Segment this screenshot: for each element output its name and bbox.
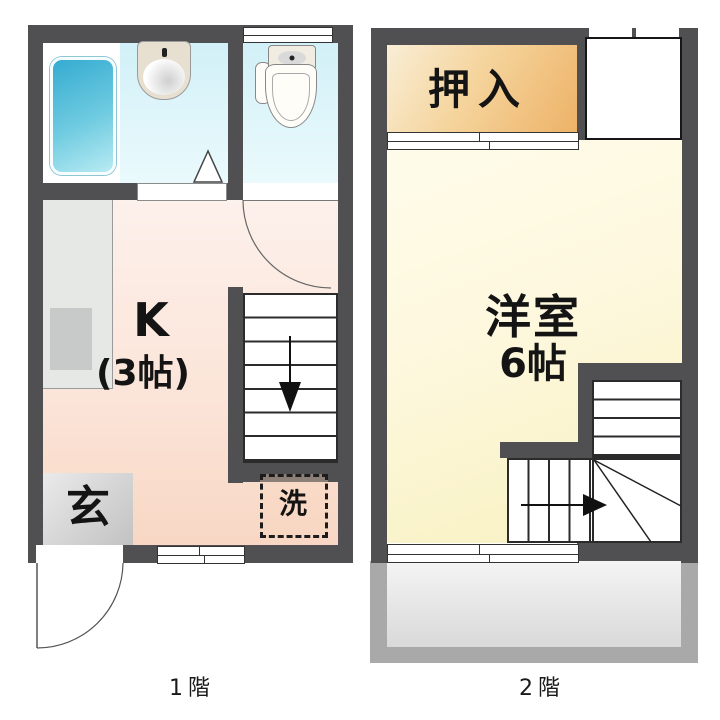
toilet-seat — [272, 73, 310, 121]
window-line — [388, 554, 578, 555]
kitchen-window — [157, 546, 245, 564]
balcony-floor — [387, 561, 681, 647]
void-window — [589, 28, 679, 37]
sliding-door-tick — [489, 141, 490, 149]
balcony-window — [387, 544, 579, 563]
floorplan-canvas: K (3帖) 玄 洗 — [0, 0, 720, 720]
wall — [43, 183, 137, 200]
room-size-label: 6帖 — [499, 344, 567, 384]
window-tick — [632, 28, 636, 37]
wall — [682, 28, 698, 563]
sliding-door-line — [388, 141, 578, 142]
sink-tap — [162, 48, 167, 57]
staircase-2f-lower-run — [507, 458, 592, 543]
window-tick — [479, 545, 480, 554]
wall — [228, 43, 243, 183]
floor2-caption: 2階 — [519, 670, 565, 702]
toilet-doorway — [243, 183, 338, 201]
wall — [371, 28, 387, 563]
room-label: 洋室 — [485, 294, 581, 340]
laundry-label: 洗 — [279, 490, 307, 518]
closet-sliding-door — [387, 132, 579, 150]
wall — [225, 183, 243, 200]
wall — [577, 543, 698, 563]
void-space — [585, 37, 682, 140]
floor1-caption: 1階 — [169, 670, 215, 702]
entrance-door-opening — [36, 545, 123, 563]
wall — [577, 45, 585, 140]
wall — [228, 287, 243, 483]
wall — [578, 363, 682, 380]
wall — [28, 25, 43, 563]
kitchen-sink-unit — [50, 308, 92, 370]
sink-basin — [143, 59, 185, 95]
wall — [500, 442, 592, 458]
entrance-door-swing-icon — [37, 563, 123, 648]
window-line — [158, 555, 244, 556]
staircase-2f-winder — [592, 458, 682, 543]
staircase-1f — [243, 293, 338, 463]
closet-label: 押入 — [428, 69, 528, 111]
window-tick — [199, 547, 200, 555]
window-line — [244, 35, 332, 36]
wall — [338, 25, 353, 563]
bath-door-threshold — [137, 183, 227, 201]
staircase-2f-upper-run — [592, 380, 682, 458]
toilet-tank-tap — [290, 56, 295, 61]
bathtub-fixture — [50, 57, 116, 175]
sliding-door-tick — [479, 133, 480, 141]
entrance-label: 玄 — [66, 486, 110, 530]
kitchen-label: K — [133, 297, 169, 343]
window-tick — [204, 555, 205, 563]
sink-fixture — [137, 41, 191, 100]
toilet-window — [243, 27, 333, 43]
kitchen-size-label: (3帖) — [96, 356, 190, 392]
window-tick — [489, 554, 490, 563]
